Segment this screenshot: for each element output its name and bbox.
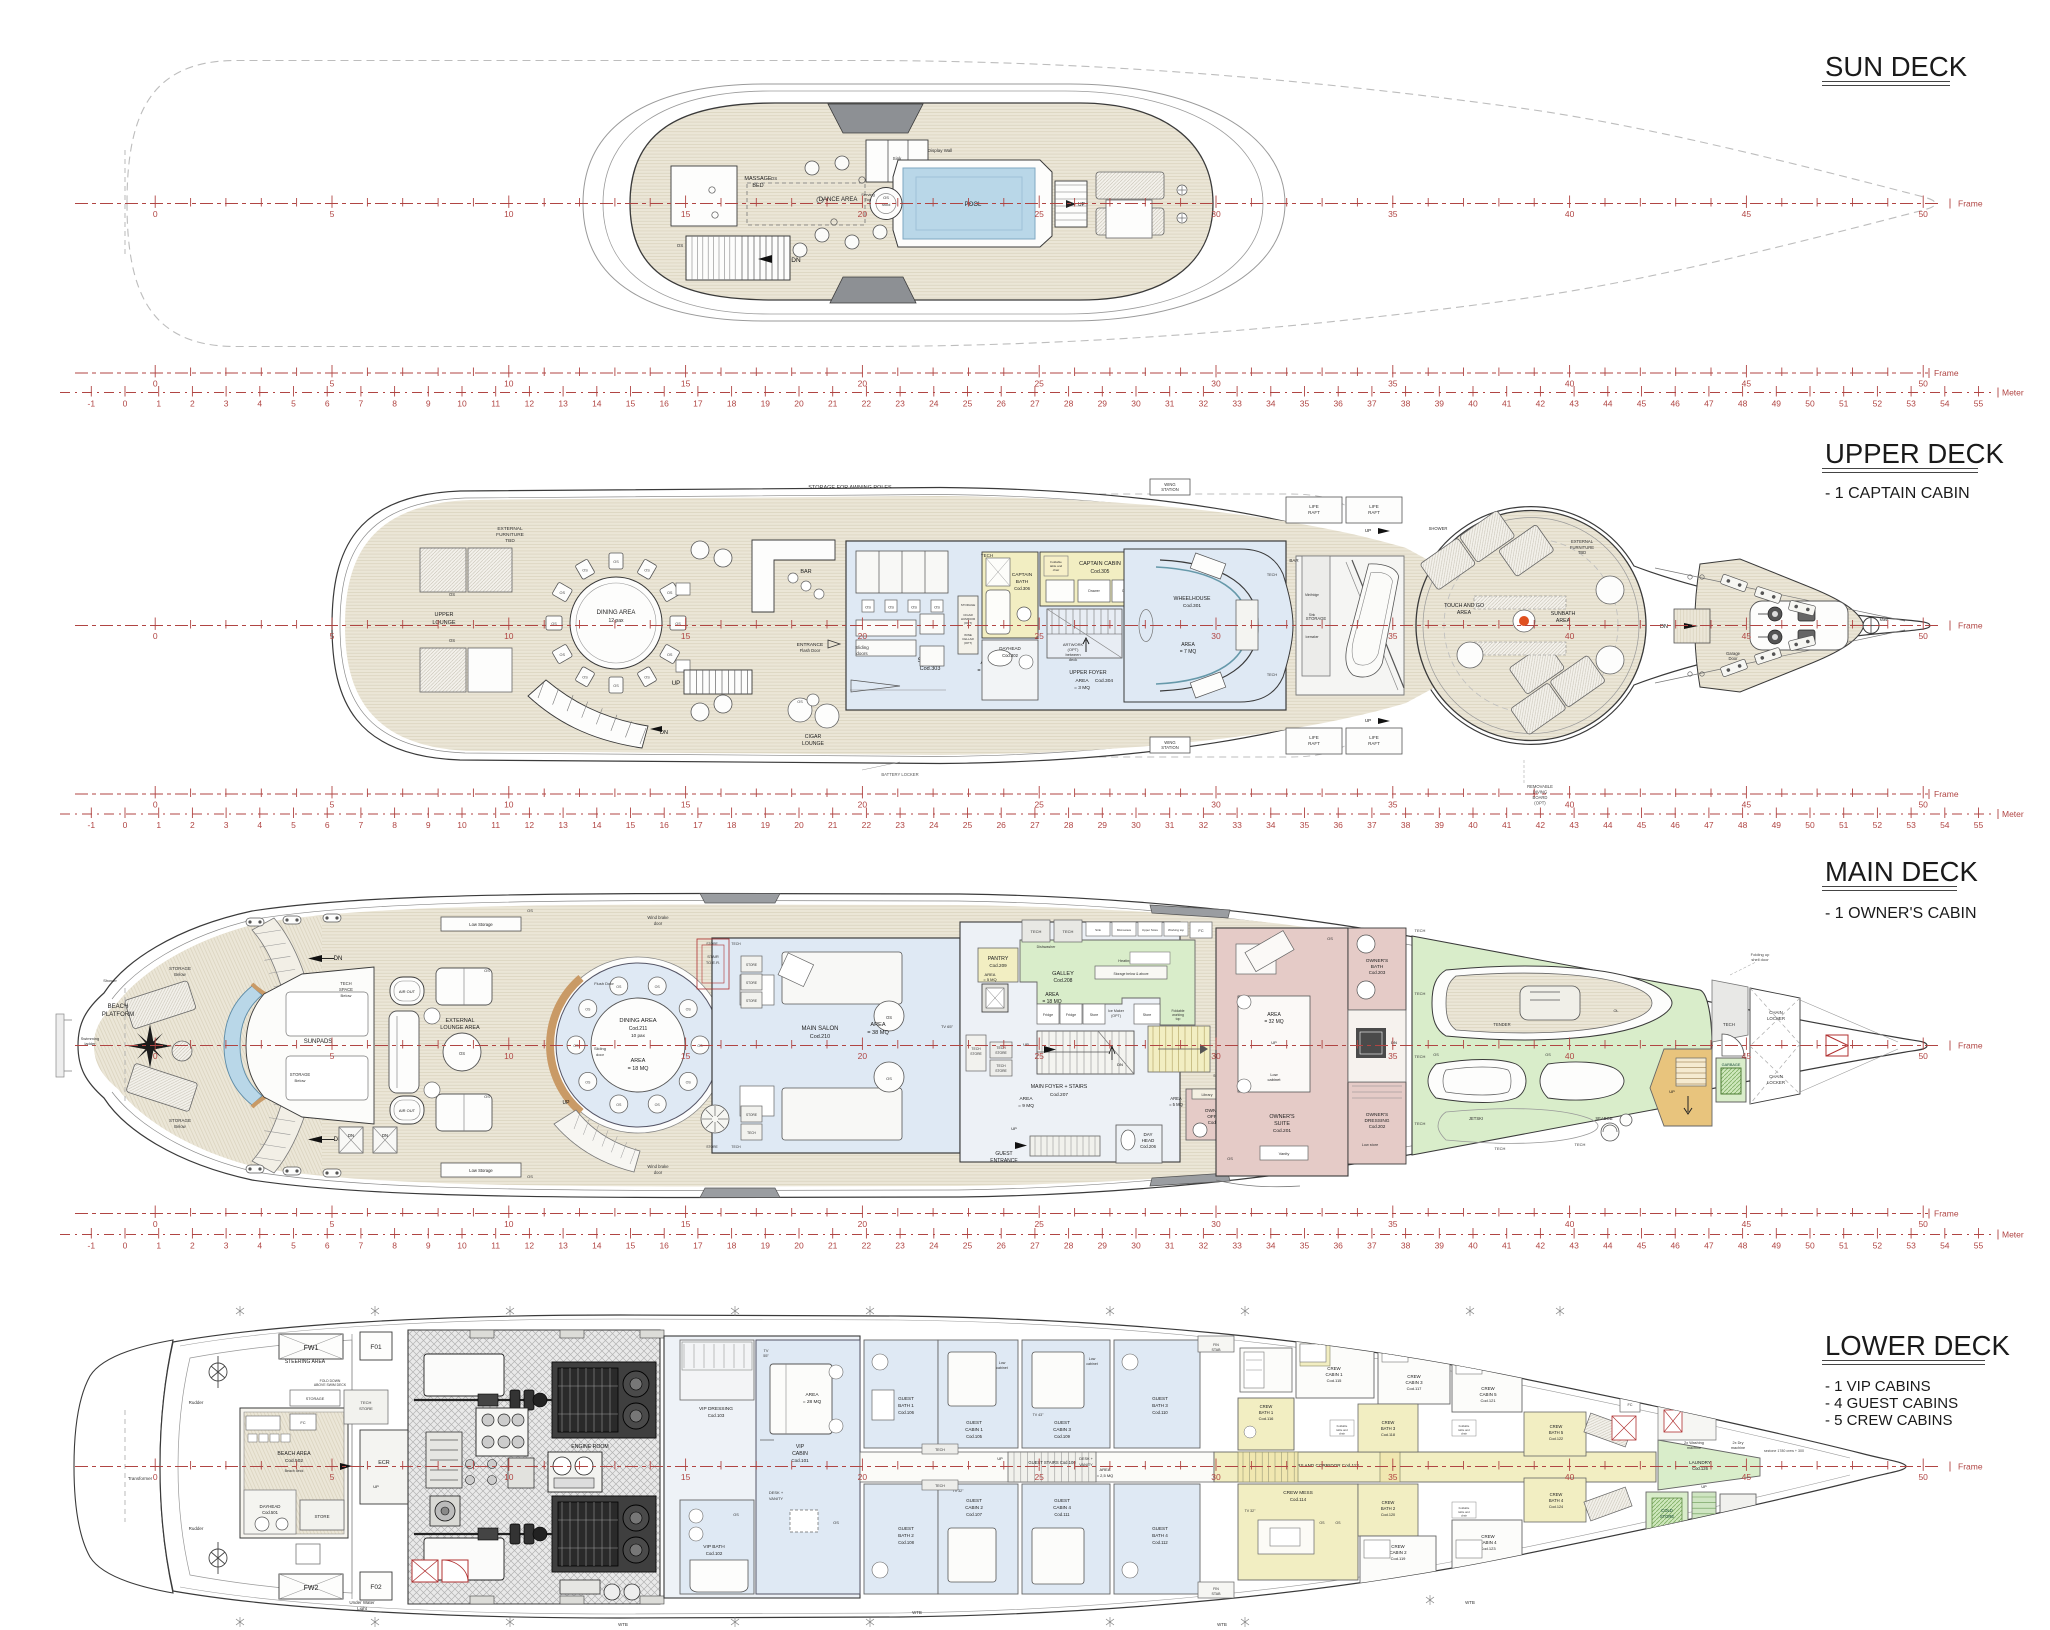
svg-text:DN: DN — [791, 257, 801, 264]
svg-text:TECH: TECH — [1575, 1142, 1586, 1147]
svg-text:36: 36 — [1333, 399, 1343, 409]
svg-text:DN: DN — [1391, 1040, 1397, 1045]
svg-text:49: 49 — [1772, 820, 1782, 830]
svg-text:FIN: FIN — [1213, 1587, 1219, 1591]
svg-text:OS: OS — [459, 1051, 465, 1056]
svg-text:TV 43": TV 43" — [1033, 1413, 1045, 1417]
svg-text:UP: UP — [1365, 528, 1371, 533]
svg-text:GUEST: GUEST — [966, 1420, 982, 1425]
svg-text:OS: OS — [888, 605, 894, 610]
svg-text:SEABOB: SEABOB — [1595, 1116, 1612, 1121]
svg-text:51: 51 — [1839, 399, 1849, 409]
svg-text:Cod.124: Cod.124 — [1549, 1505, 1563, 1509]
svg-text:Cod.117: Cod.117 — [1407, 1386, 1423, 1391]
svg-text:EXTERNAL: EXTERNAL — [497, 526, 523, 532]
svg-text:38: 38 — [1401, 1241, 1411, 1251]
svg-text:EXTERNAL: EXTERNAL — [445, 1018, 474, 1024]
svg-text:Cod.110: Cod.110 — [1152, 1410, 1168, 1415]
svg-text:BATH 4: BATH 4 — [1152, 1533, 1168, 1538]
svg-text:45: 45 — [1742, 1219, 1752, 1229]
svg-text:Frame: Frame — [1958, 1462, 1983, 1472]
svg-text:Frame: Frame — [1958, 621, 1983, 631]
svg-text:51: 51 — [1839, 820, 1849, 830]
svg-text:CABIN: CABIN — [792, 1451, 808, 1457]
svg-text:OS: OS — [573, 1044, 579, 1048]
svg-text:TECH: TECH — [935, 1448, 945, 1452]
svg-text:DINING AREA: DINING AREA — [619, 1018, 656, 1024]
svg-text:53: 53 — [1906, 1241, 1916, 1251]
svg-text:32: 32 — [1199, 399, 1209, 409]
svg-text:STORAGE: STORAGE — [169, 1118, 191, 1123]
svg-text:OS: OS — [667, 591, 673, 595]
svg-text:5: 5 — [330, 631, 335, 641]
svg-text:Below: Below — [174, 972, 186, 977]
svg-text:ENTRANCE: ENTRANCE — [990, 1158, 1018, 1164]
svg-text:GUEST: GUEST — [995, 1151, 1012, 1157]
svg-text:41: 41 — [1502, 820, 1512, 830]
svg-text:DN: DN — [334, 956, 343, 962]
svg-text:10: 10 — [504, 1051, 514, 1061]
svg-text:35: 35 — [1300, 820, 1310, 830]
svg-text:39: 39 — [1435, 1241, 1445, 1251]
svg-text:UPPER FOYER: UPPER FOYER — [1069, 670, 1106, 676]
svg-text:LOCKER: LOCKER — [1767, 1080, 1785, 1085]
svg-text:MAIN FOYER + STAIRS: MAIN FOYER + STAIRS — [1031, 1084, 1088, 1090]
svg-text:STORE: STORE — [995, 1069, 1007, 1073]
svg-text:14: 14 — [592, 820, 602, 830]
svg-text:AIR OUT: AIR OUT — [399, 989, 416, 994]
svg-text:top: top — [1176, 1017, 1181, 1021]
svg-text:UP: UP — [1078, 202, 1086, 208]
svg-text:35: 35 — [1300, 1241, 1310, 1251]
svg-text:Minifridge: Minifridge — [1305, 593, 1319, 597]
svg-text:AREA: AREA — [1170, 1096, 1182, 1101]
svg-text:15: 15 — [626, 1241, 636, 1251]
svg-text:CABIN 2: CABIN 2 — [965, 1505, 983, 1510]
svg-text:VANITY: VANITY — [769, 1496, 783, 1501]
svg-text:TECH: TECH — [1063, 929, 1074, 934]
svg-text:Upper Store: Upper Store — [1142, 928, 1159, 932]
svg-text:50: 50 — [1918, 379, 1928, 389]
svg-text:OL: OL — [1613, 1009, 1618, 1013]
svg-text:OWNER'S: OWNER'S — [1366, 1112, 1389, 1118]
svg-text:Cod.109: Cod.109 — [1054, 1434, 1071, 1439]
svg-text:10: 10 — [504, 1219, 514, 1229]
svg-text:ECR: ECR — [378, 1460, 389, 1466]
svg-text:MAIN DECK: MAIN DECK — [1825, 856, 1978, 887]
svg-text:5: 5 — [330, 1219, 335, 1229]
svg-text:OS: OS — [667, 653, 673, 657]
svg-text:9: 9 — [426, 820, 431, 830]
svg-text:GUEST: GUEST — [1152, 1396, 1168, 1401]
svg-text:45: 45 — [1637, 1241, 1647, 1251]
svg-text:26: 26 — [996, 1241, 1006, 1251]
svg-text:0: 0 — [153, 1219, 158, 1229]
svg-text:OS: OS — [1327, 936, 1333, 941]
svg-text:TECH: TECH — [996, 1064, 1006, 1068]
svg-text:AREA: AREA — [1075, 678, 1089, 684]
svg-text:55: 55 — [1974, 399, 1984, 409]
svg-text:UP: UP — [1701, 1485, 1707, 1489]
svg-text:35: 35 — [1388, 1472, 1398, 1482]
svg-text:14: 14 — [592, 1241, 602, 1251]
svg-text:VIP BATH: VIP BATH — [703, 1544, 725, 1550]
svg-text:Cod.115: Cod.115 — [1327, 1378, 1343, 1383]
svg-text:54: 54 — [1940, 820, 1950, 830]
svg-text:Cod.123: Cod.123 — [1480, 1546, 1496, 1551]
svg-text:Below: Below — [295, 1078, 306, 1083]
svg-text:Cod.209: Cod.209 — [989, 963, 1007, 968]
svg-text:Display Wall: Display Wall — [928, 148, 953, 153]
svg-text:30: 30 — [1211, 379, 1221, 389]
svg-text:AIR OUT: AIR OUT — [399, 1108, 416, 1113]
svg-text:Cod.302: Cod.302 — [1002, 653, 1019, 658]
svg-text:= 2,5 MQ: = 2,5 MQ — [1097, 1473, 1114, 1478]
svg-text:Store: Store — [1143, 1013, 1152, 1017]
svg-text:11: 11 — [491, 820, 500, 830]
svg-text:27: 27 — [1030, 820, 1040, 830]
svg-text:27: 27 — [1030, 1241, 1040, 1251]
svg-text:TECH: TECH — [935, 1484, 945, 1488]
svg-text:20: 20 — [858, 209, 868, 219]
svg-text:31: 31 — [1165, 399, 1175, 409]
svg-text:BAR: BAR — [1289, 558, 1299, 563]
svg-text:GUEST: GUEST — [966, 1498, 982, 1503]
svg-text:- 1 OWNER'S CABIN: - 1 OWNER'S CABIN — [1825, 905, 1977, 922]
svg-text:55: 55 — [1974, 1241, 1984, 1251]
svg-text:cabinet: cabinet — [1086, 1362, 1098, 1366]
svg-text:48: 48 — [1738, 820, 1748, 830]
svg-text:Cod.118: Cod.118 — [1381, 1433, 1395, 1437]
svg-text:OS: OS — [527, 908, 533, 913]
svg-text:24: 24 — [929, 820, 939, 830]
svg-text:BATH 3: BATH 3 — [1381, 1426, 1396, 1431]
svg-text:STORE: STORE — [359, 1406, 373, 1411]
svg-text:AREA: AREA — [870, 1022, 886, 1028]
svg-text:15: 15 — [626, 399, 636, 409]
svg-text:29: 29 — [1098, 820, 1108, 830]
svg-text:48: 48 — [1738, 399, 1748, 409]
svg-text:41: 41 — [1502, 399, 1512, 409]
svg-text:TV 65": TV 65" — [941, 1024, 954, 1029]
svg-text:43: 43 — [1569, 399, 1579, 409]
svg-text:TV: TV — [764, 1349, 769, 1353]
svg-text:2: 2 — [190, 1241, 195, 1251]
svg-text:DN: DN — [348, 1133, 354, 1138]
svg-text:22: 22 — [862, 1241, 872, 1251]
svg-text:Frame: Frame — [1958, 199, 1983, 209]
svg-text:15: 15 — [681, 379, 691, 389]
svg-text:Cod.501: Cod.501 — [262, 1510, 279, 1515]
svg-text:FC: FC — [1627, 1403, 1632, 1407]
svg-text:STORAGE: STORAGE — [961, 603, 976, 607]
svg-text:TO E.R.: TO E.R. — [706, 960, 720, 965]
svg-text:50: 50 — [1918, 800, 1928, 810]
svg-text:40: 40 — [1468, 399, 1478, 409]
svg-text:CHAIN: CHAIN — [1769, 1074, 1783, 1079]
svg-text:Cod.207: Cod.207 — [1050, 1092, 1068, 1098]
svg-text:STAB: STAB — [1211, 1348, 1221, 1352]
svg-text:PANTRY: PANTRY — [988, 956, 1009, 962]
svg-text:CREW: CREW — [1260, 1404, 1273, 1409]
svg-text:LIFE: LIFE — [1309, 735, 1319, 740]
svg-text:14: 14 — [592, 399, 602, 409]
svg-text:6: 6 — [325, 820, 330, 830]
svg-text:Cod.202: Cod.202 — [1369, 1124, 1386, 1129]
svg-text:WHEELHOUSE: WHEELHOUSE — [1174, 596, 1211, 602]
svg-text:Low Storage: Low Storage — [469, 1168, 493, 1173]
svg-text:Drawer: Drawer — [1088, 589, 1100, 593]
svg-text:(OPT): (OPT) — [964, 641, 972, 645]
svg-text:12: 12 — [525, 820, 535, 830]
svg-text:STEERING AREA: STEERING AREA — [285, 1359, 326, 1365]
svg-text:TECH: TECH — [361, 1400, 372, 1405]
svg-text:TECH: TECH — [731, 1145, 741, 1149]
svg-text:42: 42 — [1536, 820, 1546, 830]
svg-text:STATION: STATION — [1161, 487, 1179, 492]
svg-text:EXTERNAL: EXTERNAL — [1571, 539, 1594, 544]
svg-text:OS: OS — [771, 176, 778, 181]
svg-text:FC: FC — [300, 1420, 305, 1425]
svg-text:30: 30 — [1211, 1472, 1221, 1482]
svg-text:Cod.105: Cod.105 — [966, 1434, 983, 1439]
svg-text:35: 35 — [1388, 379, 1398, 389]
svg-text:RAFT: RAFT — [1308, 741, 1320, 746]
svg-text:49: 49 — [1772, 1241, 1782, 1251]
svg-text:Cod.211: Cod.211 — [629, 1026, 648, 1032]
svg-text:OS: OS — [686, 1008, 692, 1012]
svg-text:39: 39 — [1435, 820, 1445, 830]
svg-text:29: 29 — [1098, 1241, 1108, 1251]
svg-text:CIGAR: CIGAR — [805, 734, 822, 740]
svg-text:16: 16 — [659, 820, 669, 830]
svg-text:= 3 MQ: = 3 MQ — [1074, 685, 1090, 691]
svg-text:machine: machine — [1687, 1446, 1701, 1450]
svg-text:UP: UP — [1011, 1126, 1017, 1131]
svg-text:UP: UP — [1271, 1040, 1277, 1045]
svg-text:= 18 MQ: = 18 MQ — [628, 1066, 649, 1072]
svg-text:Cod.101: Cod.101 — [791, 1458, 809, 1463]
svg-text:20: 20 — [858, 800, 868, 810]
svg-text:CREW: CREW — [1382, 1420, 1395, 1425]
svg-text:OS: OS — [449, 638, 455, 643]
svg-text:0: 0 — [123, 820, 128, 830]
svg-text:STORAGE: STORAGE — [169, 966, 191, 971]
svg-text:27: 27 — [1030, 399, 1040, 409]
svg-text:Meter: Meter — [2002, 1230, 2024, 1240]
svg-text:OS: OS — [934, 605, 940, 610]
svg-text:0: 0 — [153, 800, 158, 810]
svg-text:25: 25 — [1034, 800, 1044, 810]
svg-text:DESK +: DESK + — [769, 1490, 784, 1495]
svg-text:10: 10 — [457, 820, 467, 830]
svg-text:GUEST: GUEST — [1054, 1498, 1070, 1503]
svg-text:AREA: AREA — [1045, 992, 1059, 998]
svg-text:OS: OS — [833, 1520, 839, 1525]
svg-text:OWNER'S: OWNER'S — [1269, 1114, 1295, 1120]
svg-text:chair: chair — [1053, 568, 1060, 572]
svg-text:39: 39 — [1435, 399, 1445, 409]
svg-text:10: 10 — [457, 399, 467, 409]
svg-text:OS: OS — [449, 592, 455, 597]
svg-text:OS: OS — [527, 1174, 533, 1179]
svg-text:UP: UP — [672, 681, 680, 687]
svg-text:Cod.106: Cod.106 — [898, 1410, 915, 1415]
svg-text:OS: OS — [484, 968, 490, 973]
svg-text:2x Washing: 2x Washing — [1684, 1441, 1704, 1445]
svg-text:9: 9 — [426, 399, 431, 409]
svg-text:6: 6 — [325, 1241, 330, 1251]
svg-text:33: 33 — [1232, 1241, 1242, 1251]
svg-text:TECH: TECH — [981, 553, 993, 558]
svg-text:19: 19 — [761, 1241, 771, 1251]
svg-text:40: 40 — [1565, 1472, 1575, 1482]
svg-text:OS: OS — [560, 653, 566, 657]
svg-text:STAB: STAB — [1211, 1592, 1221, 1596]
svg-text:ABOVE SWIM DECK: ABOVE SWIM DECK — [314, 1383, 347, 1387]
svg-text:40: 40 — [1468, 1241, 1478, 1251]
svg-text:15: 15 — [681, 800, 691, 810]
svg-text:STORAGE: STORAGE — [290, 1072, 311, 1077]
svg-text:25: 25 — [1034, 1219, 1044, 1229]
svg-text:OS: OS — [613, 684, 619, 688]
svg-text:AREA: AREA — [805, 1392, 819, 1398]
svg-text:2: 2 — [190, 399, 195, 409]
svg-text:TV 32": TV 32" — [1245, 1509, 1257, 1513]
svg-text:17: 17 — [693, 1241, 703, 1251]
svg-text:DN: DN — [1660, 624, 1668, 630]
svg-text:38: 38 — [1401, 820, 1411, 830]
svg-text:34: 34 — [1266, 1241, 1276, 1251]
svg-text:45: 45 — [1742, 209, 1752, 219]
svg-text:Transformer: Transformer — [128, 1476, 153, 1481]
svg-text:Beach deck: Beach deck — [285, 1469, 304, 1473]
svg-text:23: 23 — [895, 820, 905, 830]
svg-text:machine: machine — [1731, 1446, 1745, 1450]
svg-text:25: 25 — [963, 1241, 973, 1251]
svg-text:54: 54 — [1940, 399, 1950, 409]
svg-text:LOUNGE AREA: LOUNGE AREA — [440, 1025, 480, 1031]
svg-text:38: 38 — [1401, 399, 1411, 409]
svg-text:31: 31 — [1165, 820, 1175, 830]
svg-text:Cod.102: Cod.102 — [706, 1551, 723, 1556]
svg-text:DAYHEAD: DAYHEAD — [999, 646, 1021, 651]
svg-text:13: 13 — [558, 820, 568, 830]
svg-text:47: 47 — [1704, 1241, 1714, 1251]
svg-text:CREW: CREW — [1481, 1386, 1495, 1391]
svg-text:Cod.116: Cod.116 — [1259, 1416, 1275, 1421]
svg-text:30: 30 — [1211, 1219, 1221, 1229]
svg-text:18: 18 — [727, 1241, 737, 1251]
svg-text:15: 15 — [681, 1219, 691, 1229]
svg-text:SUNPADS: SUNPADS — [304, 1039, 333, 1045]
svg-text:16: 16 — [659, 399, 669, 409]
svg-text:LIFE: LIFE — [1369, 504, 1379, 509]
svg-text:BATH: BATH — [1016, 579, 1029, 585]
svg-text:50: 50 — [1805, 399, 1815, 409]
svg-text:0: 0 — [153, 1472, 158, 1482]
svg-text:Frame: Frame — [1934, 789, 1959, 799]
svg-text:OS: OS — [677, 243, 684, 248]
svg-text:40: 40 — [1565, 1219, 1575, 1229]
svg-text:Cod.103: Cod.103 — [708, 1413, 725, 1418]
svg-text:29: 29 — [1098, 399, 1108, 409]
svg-text:TECH: TECH — [1267, 573, 1278, 577]
svg-text:25: 25 — [963, 399, 973, 409]
svg-text:Sliding: Sliding — [855, 645, 869, 650]
svg-text:4: 4 — [257, 399, 262, 409]
svg-text:OS: OS — [1433, 1053, 1439, 1057]
svg-text:= 7 MQ: = 7 MQ — [1180, 649, 1197, 655]
svg-text:FURNITURE: FURNITURE — [496, 532, 524, 538]
svg-text:50: 50 — [1918, 1472, 1928, 1482]
svg-text:21: 21 — [828, 820, 838, 830]
svg-text:40: 40 — [1565, 631, 1575, 641]
svg-text:chair: chair — [1461, 1432, 1467, 1436]
svg-text:OS: OS — [1319, 1521, 1325, 1525]
svg-text:UP: UP — [563, 1100, 571, 1106]
svg-text:TENDER: TENDER — [1493, 1022, 1510, 1027]
svg-text:OS: OS — [886, 1076, 892, 1081]
svg-text:0: 0 — [123, 399, 128, 409]
svg-text:F02: F02 — [370, 1584, 382, 1591]
svg-text:Cod.305: Cod.305 — [1091, 569, 1110, 575]
svg-text:SHOWER: SHOWER — [1429, 526, 1448, 531]
svg-text:45: 45 — [1742, 1051, 1752, 1061]
svg-text:LIFE: LIFE — [1369, 735, 1379, 740]
svg-text:32: 32 — [1199, 820, 1209, 830]
svg-text:12: 12 — [525, 399, 535, 409]
svg-text:AREA: AREA — [1457, 610, 1472, 616]
svg-text:25: 25 — [1034, 1472, 1044, 1482]
svg-text:COLD: COLD — [1661, 1508, 1673, 1513]
svg-text:30: 30 — [1211, 1051, 1221, 1061]
svg-text:STATION: STATION — [1161, 745, 1179, 750]
svg-text:5: 5 — [330, 1051, 335, 1061]
svg-text:19: 19 — [761, 820, 771, 830]
svg-text:GARBAGE: GARBAGE — [1722, 1063, 1741, 1067]
svg-text:4: 4 — [257, 820, 262, 830]
svg-text:17: 17 — [693, 399, 703, 409]
svg-text:1: 1 — [156, 820, 161, 830]
svg-text:10: 10 — [457, 1241, 467, 1251]
svg-text:32: 32 — [1199, 1241, 1209, 1251]
svg-text:55": 55" — [763, 1354, 769, 1358]
svg-text:Cod.502: Cod.502 — [285, 1458, 303, 1464]
svg-text:5: 5 — [291, 820, 296, 830]
svg-text:STAIR: STAIR — [707, 954, 719, 959]
svg-text:CREW: CREW — [1407, 1374, 1421, 1379]
svg-text:CAPTAIN CABIN: CAPTAIN CABIN — [1079, 561, 1121, 567]
svg-text:OS: OS — [655, 985, 661, 989]
svg-text:OS: OS — [883, 195, 889, 200]
svg-text:Storage below & above: Storage below & above — [1113, 972, 1148, 976]
svg-text:0: 0 — [153, 379, 158, 389]
svg-text:OS: OS — [1545, 1053, 1551, 1057]
svg-text:BATH 5: BATH 5 — [1549, 1430, 1564, 1435]
svg-text:16: 16 — [659, 1241, 669, 1251]
svg-text:Microwave: Microwave — [1117, 928, 1132, 932]
svg-text:STORAGE: STORAGE — [306, 1397, 325, 1401]
svg-text:Cod.201: Cod.201 — [1273, 1128, 1291, 1134]
svg-text:DESK +: DESK + — [1079, 1457, 1093, 1461]
svg-text:44: 44 — [1603, 399, 1613, 409]
svg-text:7: 7 — [359, 399, 364, 409]
svg-text:cabinet: cabinet — [996, 1366, 1008, 1370]
svg-text:Sink: Sink — [1309, 613, 1316, 617]
svg-text:Frame: Frame — [1958, 1041, 1983, 1051]
svg-text:21: 21 — [828, 399, 838, 409]
